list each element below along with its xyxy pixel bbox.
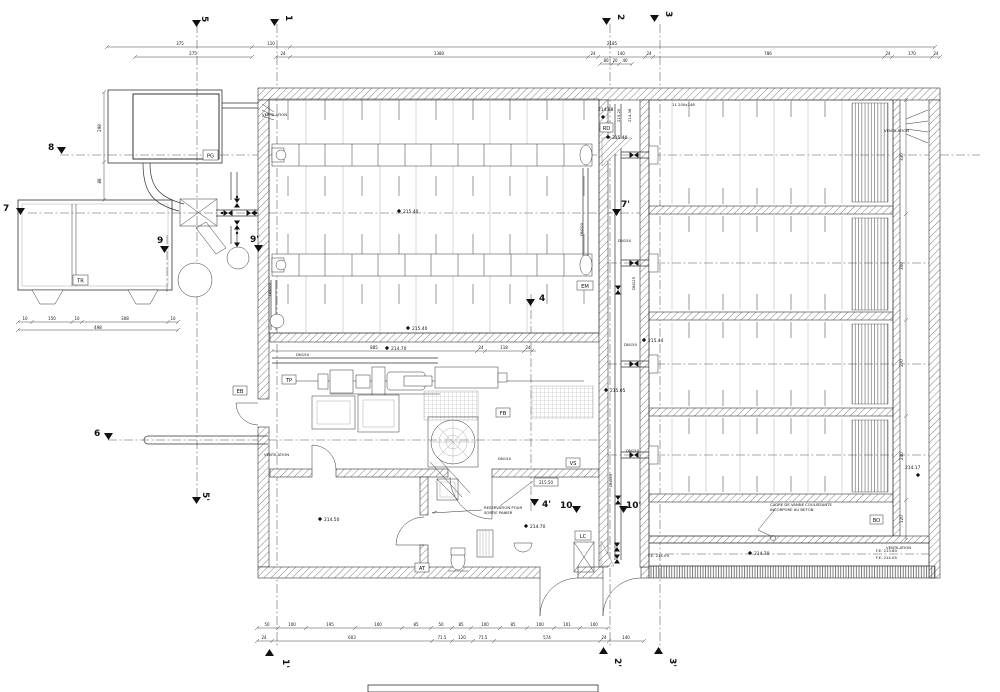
dim-label: 885 [370,345,378,350]
dim-label: 40 [622,58,628,63]
dim-label: 10 [170,316,176,321]
elevation-label: 215.20 [616,108,621,122]
dim-label: 300 [899,262,904,270]
dim-label: 140 [617,51,625,56]
dim-label: 375 [176,41,184,46]
section-marker-7p: 7' [621,200,630,210]
note-cadre-line2: INCORPORE AU BETON [770,507,814,512]
section-marker-1: 1 [283,15,293,21]
dim-label: 574 [543,635,551,640]
dim-label: 88 [97,178,102,184]
pipe-label: DN150 [608,473,613,487]
elevation-label: 214.70 [530,524,546,530]
lamella-module [852,218,888,310]
elevation-label: F.E. 214.05 [876,555,897,560]
dim-label: 270 [899,359,904,367]
ventilation-label: VENTILATION [886,545,911,550]
dim-label: 1380 [434,51,445,56]
elevation-label: 214.70 [754,551,770,557]
dim-label: 24 [590,51,596,56]
pipe-label: DN150 [296,352,310,357]
section-marker-6: 6 [94,429,100,439]
ventilation-label: VENTILATION [884,128,909,133]
section-marker-5: 5 [199,16,209,22]
collector-trough-1 [272,144,592,166]
room-label-lc: LC [580,534,587,540]
dim-label: 85 [510,622,516,627]
dim-label: 24 [646,51,652,56]
dim-label: 20 [612,58,618,63]
floor-grating-patch [531,386,593,418]
dim-label: 275 [189,51,197,56]
dim-label: 10 [22,316,28,321]
section-marker-9p: 9' [250,235,259,245]
dim-label: 150 [48,316,56,321]
floor-plan-page: VENTILATION 215.40 215.40 DN200 DN200 EM… [0,0,1000,692]
room-label-rd: RD [603,126,611,132]
dim-label: 85 [458,622,464,627]
room-label-tr: TR [76,279,84,285]
room-label-at: AT [419,566,426,572]
collector-trough-2 [272,254,592,276]
ventilation-label: VENTILATION [262,112,287,117]
dim-label: 240 [899,452,904,460]
elevation-label: 214.17 [905,465,921,471]
floor-grating [649,566,935,578]
section-marker-2p: 2' [612,658,622,667]
elevation-label: 215.40 [412,326,428,332]
dim-label: 24 [280,51,286,56]
floor-grating-patch [424,391,478,420]
equipment-cabinet [358,395,399,432]
dim-label: 24 [478,345,484,350]
elevation-label: 215.40 [612,135,628,141]
dim-label: 330 [899,153,904,161]
elevation-label: 214.38 [627,108,632,122]
dim-label: 195 [326,622,334,627]
elevation-label: 215.44 [648,338,664,344]
section-marker-7: 7 [3,204,9,214]
dim-label: 118 [500,345,508,350]
section-marker-4p: 4' [542,500,551,510]
dim-label: 101 [563,622,571,627]
pipe-label: DN150 [498,456,512,461]
elevation-label: 215.50 [539,480,553,485]
section-marker-5p: 5' [200,492,210,501]
lamella-module [852,103,888,202]
dim-label: 120 [458,635,466,640]
dim-label: 100 [481,622,489,627]
dim-label: 786 [764,51,772,56]
dim-label: 80 [603,58,609,63]
dim-label: 71.5 [438,635,447,640]
grid-note: 11 200x248 [672,102,695,107]
dim-label: 24 [601,635,607,640]
dim-label: 498 [94,325,102,330]
section-marker-2: 2 [615,14,625,20]
pipe-label: DN200 [267,282,272,296]
elevation-label: F.E. 214.09 [648,553,669,558]
elevation-label: 214.50 [324,517,340,523]
section-marker-4: 4 [539,294,545,304]
dim-label: 71.5 [479,635,488,640]
dim-label: 170 [908,51,916,56]
section-marker-9: 9 [157,236,163,246]
dim-label: 100 [288,622,296,627]
pipe-label: DN200 [579,222,584,236]
room-label-bo: BO [873,518,881,524]
elevation-label: 215.05 [610,388,626,394]
dim-label: 10 [74,316,80,321]
room-label-eb: EB [237,389,244,395]
dim-label: 100 [374,622,382,627]
dim-label: 140 [622,635,630,640]
dim-label: 24 [885,51,891,56]
dim-label: 110 [267,41,275,46]
dim-label: 85 [413,622,419,627]
pipe-label: DN150 [626,448,640,453]
dim-label: 100 [590,622,598,627]
dim-label: 100 [536,622,544,627]
section-marker-10: 10 [560,501,573,511]
section-marker-3p: 3' [667,658,677,667]
dim-label: 24 [261,635,267,640]
floor-plan-drawing: VENTILATION 215.40 215.40 DN200 DN200 EM… [0,0,1000,692]
elevation-label: 214.88 [598,107,614,113]
lamella-module [852,420,888,492]
dim-label: 2185 [607,41,618,46]
room-label-vs: VS [570,461,577,467]
manhole [227,247,249,269]
section-marker-8: 8 [48,143,54,153]
dim-label: 120 [899,515,904,523]
pipe-label: DN150 [618,238,632,243]
room-label-tp: TP [285,378,292,384]
dim-label: 50 [438,622,444,627]
dim-label: 308 [121,316,129,321]
dim-label: 603 [348,635,356,640]
section-marker-3: 3 [663,11,673,17]
section-marker-1p: 1' [280,659,290,668]
room-label-fb: FB [500,411,507,417]
pipe-label: DN125 [631,276,636,290]
ventilation-label: VENTILATION [264,452,289,457]
pipe-label: DN150 [624,342,638,347]
note-reservation-line2: SORTIE PANIER [484,510,513,515]
dim-label: 24 [525,345,531,350]
dim-label: 298 [97,124,102,132]
section-marker-10p: 10' [626,501,641,511]
manhole [178,263,212,297]
elevation-label: 215.40 [403,209,419,215]
lamella-module [852,324,888,404]
dim-label: 24 [933,51,939,56]
room-label-pg: PG [207,154,214,160]
room-label-em: EM [581,284,589,290]
dim-label: 50 [264,622,270,627]
